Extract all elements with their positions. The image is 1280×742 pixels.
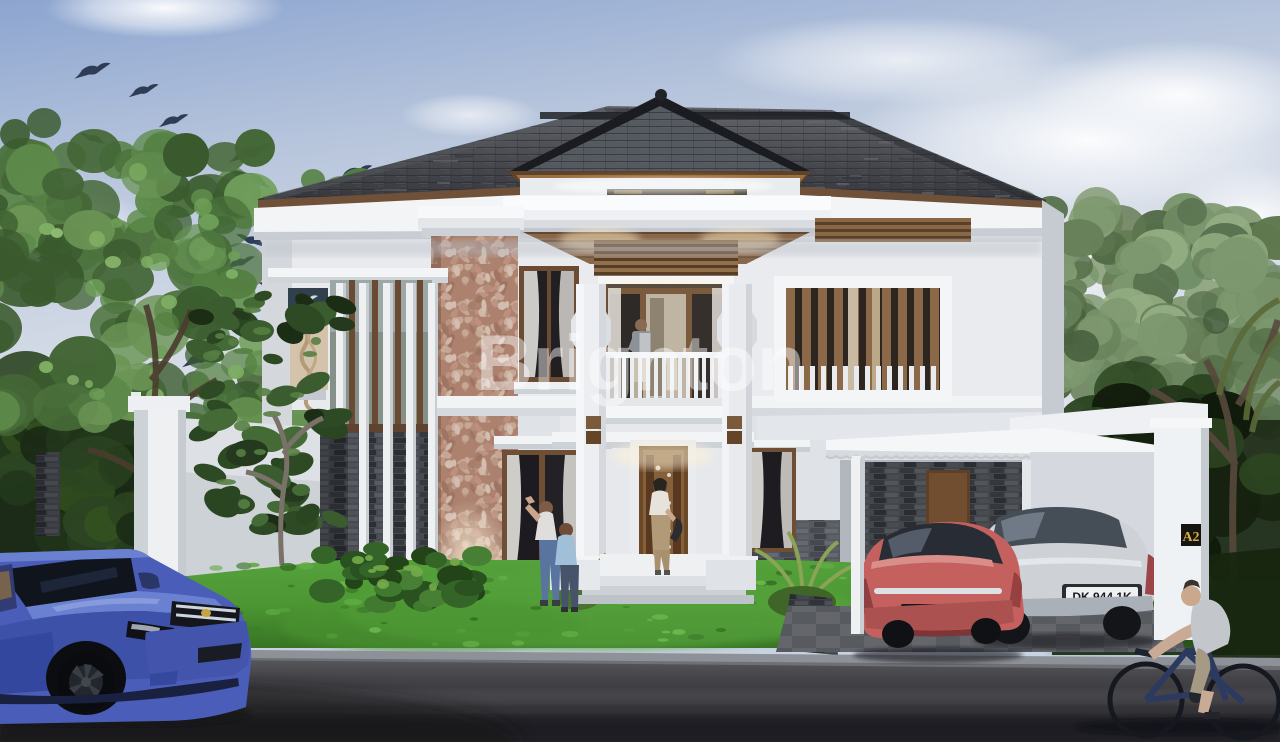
svg-text:A2: A2	[1182, 530, 1199, 545]
svg-text:Brighton: Brighton	[476, 318, 805, 407]
